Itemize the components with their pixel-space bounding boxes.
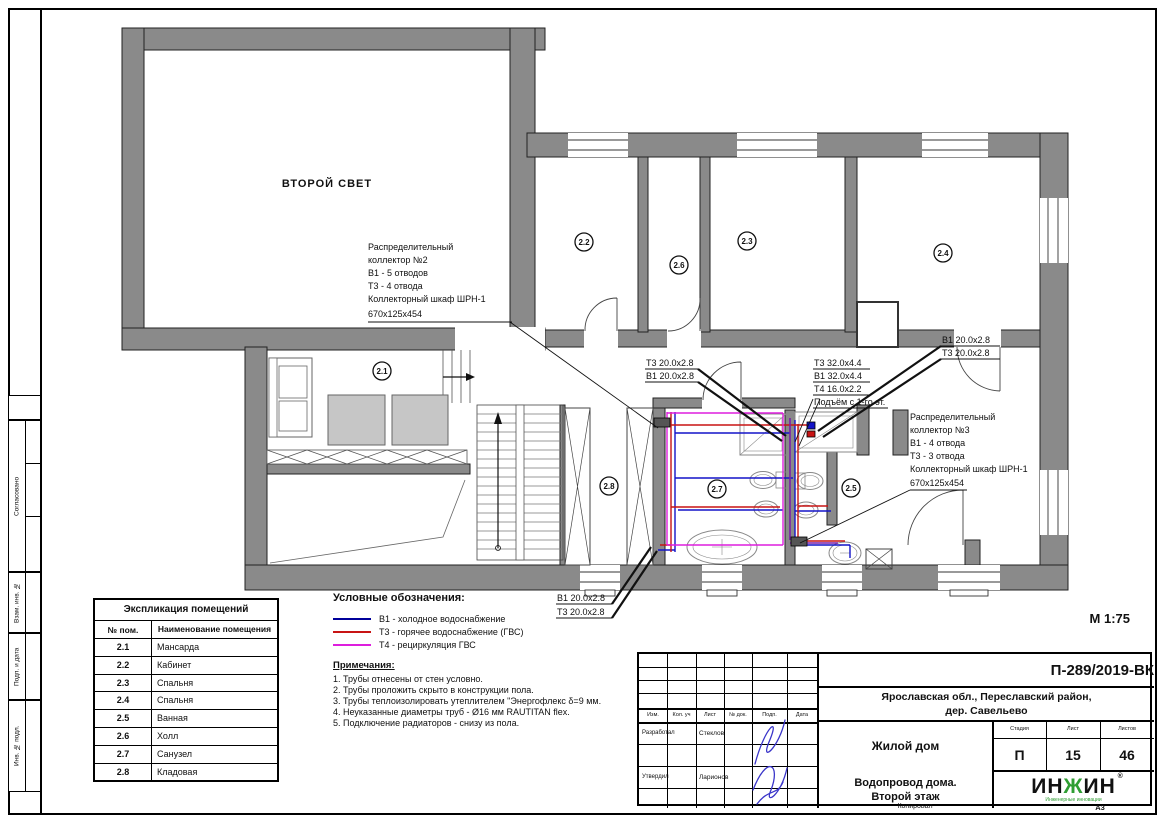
project-name: Жилой дом [819,721,992,770]
room-tag-2-2: 2.2 [575,233,593,251]
room-tag-2-5: 2.5 [842,479,860,497]
legend: Условные обозначения: В1 - холодное водо… [333,592,613,729]
room-tag-2-8: 2.8 [600,477,618,495]
b1-line-swatch [333,618,371,620]
svg-text:2.2: 2.2 [578,238,590,247]
bidet-icon [754,501,778,517]
table-row: 2.6Холл [95,728,277,746]
note-2: 2. Трубы проложить скрыто в конструкции … [333,685,613,696]
table-header: № пом. Наименование помещения [95,621,277,639]
t4-line-swatch [333,644,371,646]
svg-text:В1 - 5 отводов: В1 - 5 отводов [368,268,428,278]
title-block: Изм. Кол. уч Лист № док. Подп. Дата Разр… [637,652,1152,806]
sofa-icon [269,358,277,437]
format-label: А3 [1080,803,1120,812]
room-tag-2-7: 2.7 [708,480,726,498]
room-tag-2-6: 2.6 [670,256,688,274]
riser-t3 [807,431,815,437]
room-tag-2-4: 2.4 [934,244,952,262]
room-explication-table: Экспликация помещений № пом. Наименовани… [93,598,279,782]
table-row: 2.8Кладовая [95,764,277,781]
svg-text:Распределительный: Распределительный [910,412,995,422]
svg-text:Т3 - 4 отвода: Т3 - 4 отвода [368,281,423,291]
table-icon [328,395,385,445]
pipe-labels-left: Т3 20.0х2.8 В1 20.0х2.8 [646,358,694,381]
sheet-label: Лист [1046,720,1100,738]
svg-text:Т4 16.0х2.2: Т4 16.0х2.2 [814,384,862,394]
copied-label: Копировал [860,803,970,810]
shaft-box [857,302,898,347]
table-row: 2.4Спальня [95,692,277,710]
collector-2-box [654,418,670,427]
sheet-value: 15 [1046,739,1100,770]
col-list: Лист [696,708,724,722]
collector-3-annotation: Распределительный коллектор №3 В1 - 4 от… [910,412,1028,488]
table-row: 2.3Спальня [95,675,277,693]
developed-name: Стеклов [697,722,753,744]
svg-text:2.1: 2.1 [376,367,388,376]
table-icon [392,395,448,445]
note-4: 4. Неуказанные диаметры труб - Ø16 мм RA… [333,707,613,718]
legend-item-t4: Т4 - рециркуляция ГВС [333,640,613,650]
sheets-value: 46 [1100,739,1154,770]
note-1: 1. Трубы отнесены от стен условно. [333,674,613,685]
svg-text:коллектор №3: коллектор №3 [910,425,970,435]
table-row: 2.2Кабинет [95,657,277,675]
table-title: Экспликация помещений [95,600,277,621]
legend-item-b1: В1 - холодное водоснабжение [333,614,613,624]
svg-text:2.6: 2.6 [673,261,685,270]
pipe-labels-riser: Т3 32.0х4.4 В1 32.0х4.4 Т4 16.0х2.2 Подъ… [814,358,885,407]
svg-text:Коллекторный шкаф ШРН-1: Коллекторный шкаф ШРН-1 [368,294,486,304]
note-5: 5. Подключение радиаторов - снизу из пол… [333,718,613,729]
table-row: 2.7Санузел [95,746,277,764]
svg-text:2.3: 2.3 [741,237,753,246]
legend-item-t3: Т3 - горячее водоснабжение (ГВС) [333,627,613,637]
svg-text:Т3 20.0х2.8: Т3 20.0х2.8 [942,348,990,358]
svg-text:Т3 - 3 отвода: Т3 - 3 отвода [910,451,965,461]
svg-text:670х125х454: 670х125х454 [368,309,422,319]
stage-value: П [993,739,1046,770]
second-light-label: ВТОРОЙ СВЕТ [282,177,372,190]
svg-text:Подъём с 1-го эт.: Подъём с 1-го эт. [814,397,885,407]
approved-name: Ларионов [697,766,753,788]
svg-text:2.4: 2.4 [937,249,949,258]
table-row: 2.1Мансарда [95,639,277,657]
note-3: 3. Трубы теплоизолировать утеплителем "Э… [333,696,613,707]
drawing-sheet: Согласовано Взам. инв. № Подп. и дата Ин… [0,0,1166,824]
col-kol: Кол. уч [667,708,696,722]
svg-text:2.7: 2.7 [711,485,723,494]
table-row: 2.5Ванная [95,710,277,728]
col-izm: Изм. [639,708,667,722]
svg-text:Распределительный: Распределительный [368,242,453,252]
furniture [269,358,448,445]
sheets-label: Листов [1100,720,1154,738]
svg-text:670х125х454: 670х125х454 [910,478,964,488]
walls [122,28,1068,590]
svg-text:В1 32.0х4.4: В1 32.0х4.4 [814,371,862,381]
doc-number: П-289/2019-ВК [819,654,1166,686]
developed-role: Разработал [640,722,697,744]
signature-icon [747,704,792,808]
room-tag-2-3: 2.3 [738,232,756,250]
company-logo: ИНЖИН® Инженерные инновации [993,771,1154,808]
svg-text:2.5: 2.5 [845,484,857,493]
project-location: Ярославская обл., Переславский район, де… [819,687,1154,720]
svg-text:Т3 20.0х2.8: Т3 20.0х2.8 [646,358,694,368]
legend-title: Условные обозначения: [333,592,613,604]
svg-text:В1 - 4 отвода: В1 - 4 отвода [910,438,965,448]
notes-title: Примечания: [333,660,613,671]
logo-text: ИНЖИН® [1031,776,1116,797]
svg-text:Т3 32.0х4.4: Т3 32.0х4.4 [814,358,862,368]
stage-label: Стадия [993,720,1046,738]
collector-3-box [791,537,807,546]
room-tag-2-1: 2.1 [373,362,391,380]
svg-text:В1 20.0х2.8: В1 20.0х2.8 [646,371,694,381]
svg-text:Коллекторный шкаф ШРН-1: Коллекторный шкаф ШРН-1 [910,464,1028,474]
scale-label: М 1:75 [1090,611,1130,626]
collector-2-annotation: Распределительный коллектор №2 В1 - 5 от… [368,242,486,319]
approved-role: Утвердил [640,766,697,788]
svg-text:2.8: 2.8 [603,482,615,491]
t3-line-swatch [333,631,371,633]
svg-text:В1 20.0х2.8: В1 20.0х2.8 [942,335,990,345]
svg-text:коллектор №2: коллектор №2 [368,255,428,265]
